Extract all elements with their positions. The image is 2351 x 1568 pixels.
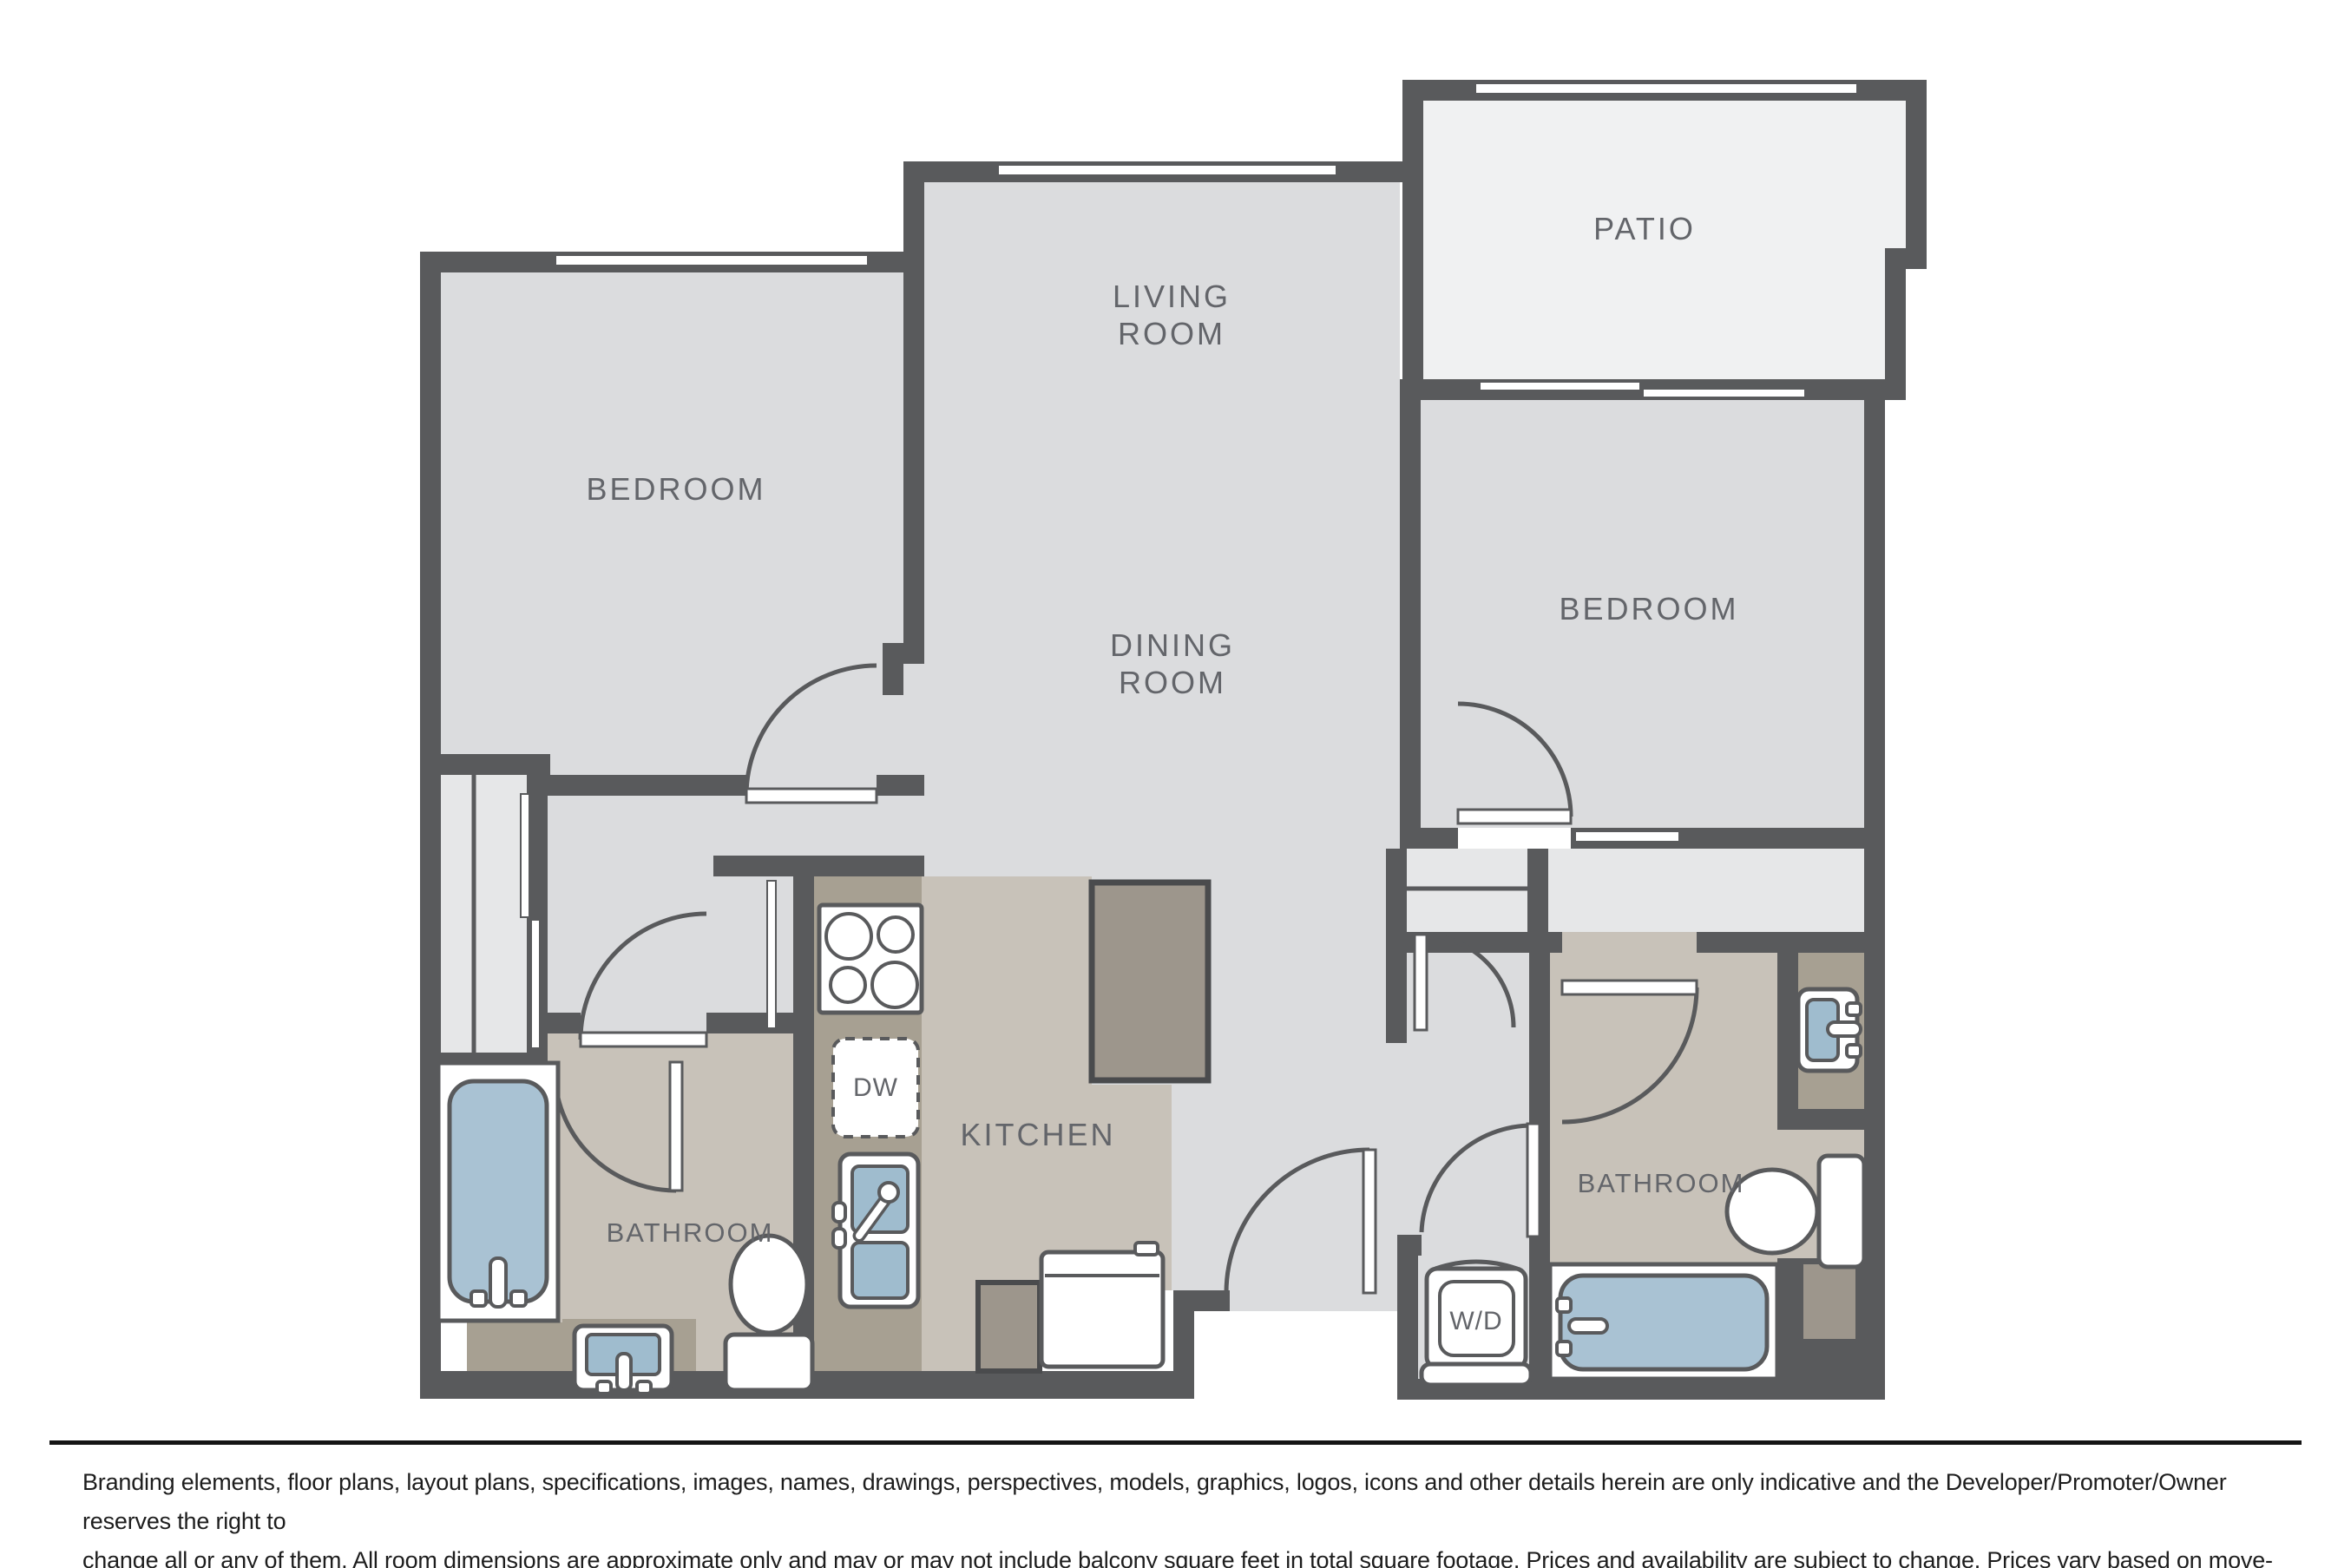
faucet-knob <box>833 1203 845 1222</box>
door-leaf-bathroom-left <box>670 1062 682 1191</box>
door-leaf-entry <box>1363 1150 1376 1293</box>
wall <box>1397 1235 1418 1400</box>
floorplan-drawing: PATIO LIVING ROOM BEDROOM DINING ROOM BE… <box>0 0 2351 1568</box>
toilet-left-icon <box>726 1236 812 1390</box>
closet-left-sliding-panel-upper <box>521 794 529 917</box>
door-leaf-wd-closet <box>1527 1124 1540 1237</box>
disclaimer-line2: change all or any of them. All room dime… <box>82 1541 2282 1568</box>
tub-faucet <box>1569 1319 1607 1333</box>
bathtub-right-icon <box>1550 1264 1777 1379</box>
kitchen-counter-block <box>978 1283 1040 1371</box>
stove-burner <box>872 962 917 1007</box>
door-leaf-bedroom-right <box>1458 810 1571 823</box>
tub-knob <box>1557 1298 1571 1312</box>
closet-left-floor <box>441 775 527 1053</box>
stove-icon <box>819 905 922 1013</box>
wall <box>1777 1109 1864 1130</box>
door-leaf-bedroom-left <box>746 789 877 803</box>
wall <box>883 643 903 695</box>
divider-rule <box>49 1440 2302 1445</box>
label-washer-dryer: W/D <box>1449 1307 1502 1335</box>
room-label-dining-line2: ROOM <box>1119 665 1226 700</box>
wall <box>420 754 550 775</box>
room-label-bathroom-right: BATHROOM <box>1578 1168 1745 1198</box>
closet-sliding-door-bedroom-right <box>1575 831 1679 842</box>
sink-basin <box>852 1243 908 1298</box>
wall <box>1400 828 1458 849</box>
floorplan-page: PATIO LIVING ROOM BEDROOM DINING ROOM BE… <box>0 0 2351 1568</box>
closet-left-sliding-panel-lower <box>531 920 540 1048</box>
label-dishwasher: DW <box>853 1073 898 1102</box>
wall <box>1906 80 1927 269</box>
hall-closet-sliding-panel <box>767 881 776 1028</box>
wd-pedestal <box>1422 1364 1531 1385</box>
room-label-living-line2: ROOM <box>1118 316 1225 351</box>
room-label-kitchen: KITCHEN <box>960 1117 1115 1152</box>
room-label-bedroom-right: BEDROOM <box>1559 591 1738 627</box>
window-patio <box>1475 83 1857 94</box>
faucet-knob <box>833 1229 845 1248</box>
wall <box>1402 80 1423 400</box>
room-label-patio: PATIO <box>1593 211 1696 246</box>
tub-faucet <box>490 1258 506 1307</box>
tub-knob <box>471 1291 486 1306</box>
disclaimer-line1: Branding elements, floor plans, layout p… <box>82 1463 2282 1541</box>
faucet <box>617 1354 631 1390</box>
toilet-tank <box>726 1335 812 1390</box>
wall <box>1777 953 1798 1130</box>
patio-sliding-door-left <box>1480 382 1640 390</box>
room-label-bathroom-left: BATHROOM <box>607 1217 774 1248</box>
bathroom-right-sink-icon <box>1798 989 1861 1071</box>
wall <box>537 775 746 796</box>
faucet-knob <box>1847 1003 1861 1015</box>
wall <box>1173 1290 1230 1311</box>
door-leaf-bathroom-right <box>1562 981 1697 994</box>
room-label-dining-line1: DINING <box>1110 627 1235 663</box>
window-bedroom-left <box>555 255 868 266</box>
wall <box>713 856 924 876</box>
stove-burner <box>878 917 913 952</box>
wall <box>877 775 924 796</box>
toilet-tank <box>1819 1156 1864 1267</box>
tub-knob <box>511 1291 526 1306</box>
fridge-icon <box>1041 1243 1163 1367</box>
wall <box>1697 932 1885 953</box>
door-leaf-hall-left <box>581 1033 706 1046</box>
kitchen-sink-icon <box>833 1154 918 1307</box>
bathroom-right-door-threshold <box>1562 932 1697 953</box>
door-leaf-hall-right <box>1415 935 1427 1030</box>
room-label-bedroom-left: BEDROOM <box>586 471 765 507</box>
wall <box>1885 248 1906 400</box>
wall <box>903 252 924 643</box>
faucet-knob <box>637 1381 651 1394</box>
tub-knob <box>1557 1342 1571 1355</box>
fridge-body <box>1041 1252 1163 1367</box>
wall <box>1864 379 1885 1400</box>
window-living-room <box>998 165 1336 175</box>
faucet <box>1828 1022 1861 1036</box>
fridge-hinge <box>1135 1243 1158 1255</box>
faucet-knob <box>597 1381 611 1394</box>
toilet-bowl <box>731 1236 807 1333</box>
stove-burner <box>831 968 865 1002</box>
wall <box>706 1013 814 1033</box>
faucet-head <box>879 1183 898 1202</box>
bathroom-left-sink-icon <box>575 1326 672 1394</box>
faucet-knob <box>1847 1045 1861 1057</box>
bathtub-left-icon <box>438 1063 558 1321</box>
bedroom-left-floor <box>441 272 924 775</box>
patio-sliding-door-right <box>1643 389 1805 397</box>
wall <box>1400 379 1421 828</box>
disclaimer-text: Branding elements, floor plans, layout p… <box>82 1463 2282 1568</box>
wall <box>548 1013 581 1033</box>
room-label-living-line1: LIVING <box>1113 279 1231 314</box>
bathroom-right-shelf <box>1803 1264 1855 1339</box>
kitchen-island <box>1092 882 1208 1080</box>
stove-burner <box>826 914 871 959</box>
wall <box>1527 849 1548 932</box>
